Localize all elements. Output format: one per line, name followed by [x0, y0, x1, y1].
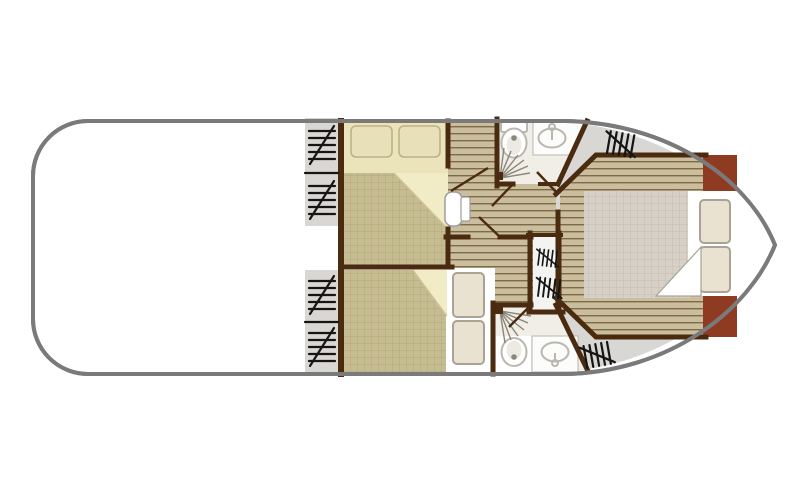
- cabin-bottom: [344, 268, 495, 372]
- toilet-flush-dot: [511, 354, 517, 360]
- window-icon: [309, 181, 335, 219]
- window-icon: [309, 126, 335, 164]
- boat-floor-plan: [0, 0, 810, 500]
- floor-plan-canvas: [0, 0, 810, 500]
- hatch-icon: [535, 249, 560, 268]
- companionway-strip: [533, 235, 556, 311]
- window-icon: [309, 328, 335, 366]
- pillow: [453, 273, 484, 317]
- pillow: [700, 247, 730, 292]
- step-large: [445, 192, 462, 226]
- pillow: [399, 126, 440, 157]
- pillow: [351, 126, 392, 157]
- forepeak-space: [737, 158, 771, 332]
- pillow: [453, 321, 484, 364]
- window-icon: [309, 276, 335, 314]
- cabin-top: [344, 121, 448, 267]
- entry-steps: [445, 192, 470, 226]
- toilet-flush-dot: [511, 135, 517, 141]
- step-small: [461, 197, 470, 221]
- hatch-icon: [534, 277, 563, 299]
- master-bed: [584, 191, 737, 298]
- pillow: [700, 200, 730, 243]
